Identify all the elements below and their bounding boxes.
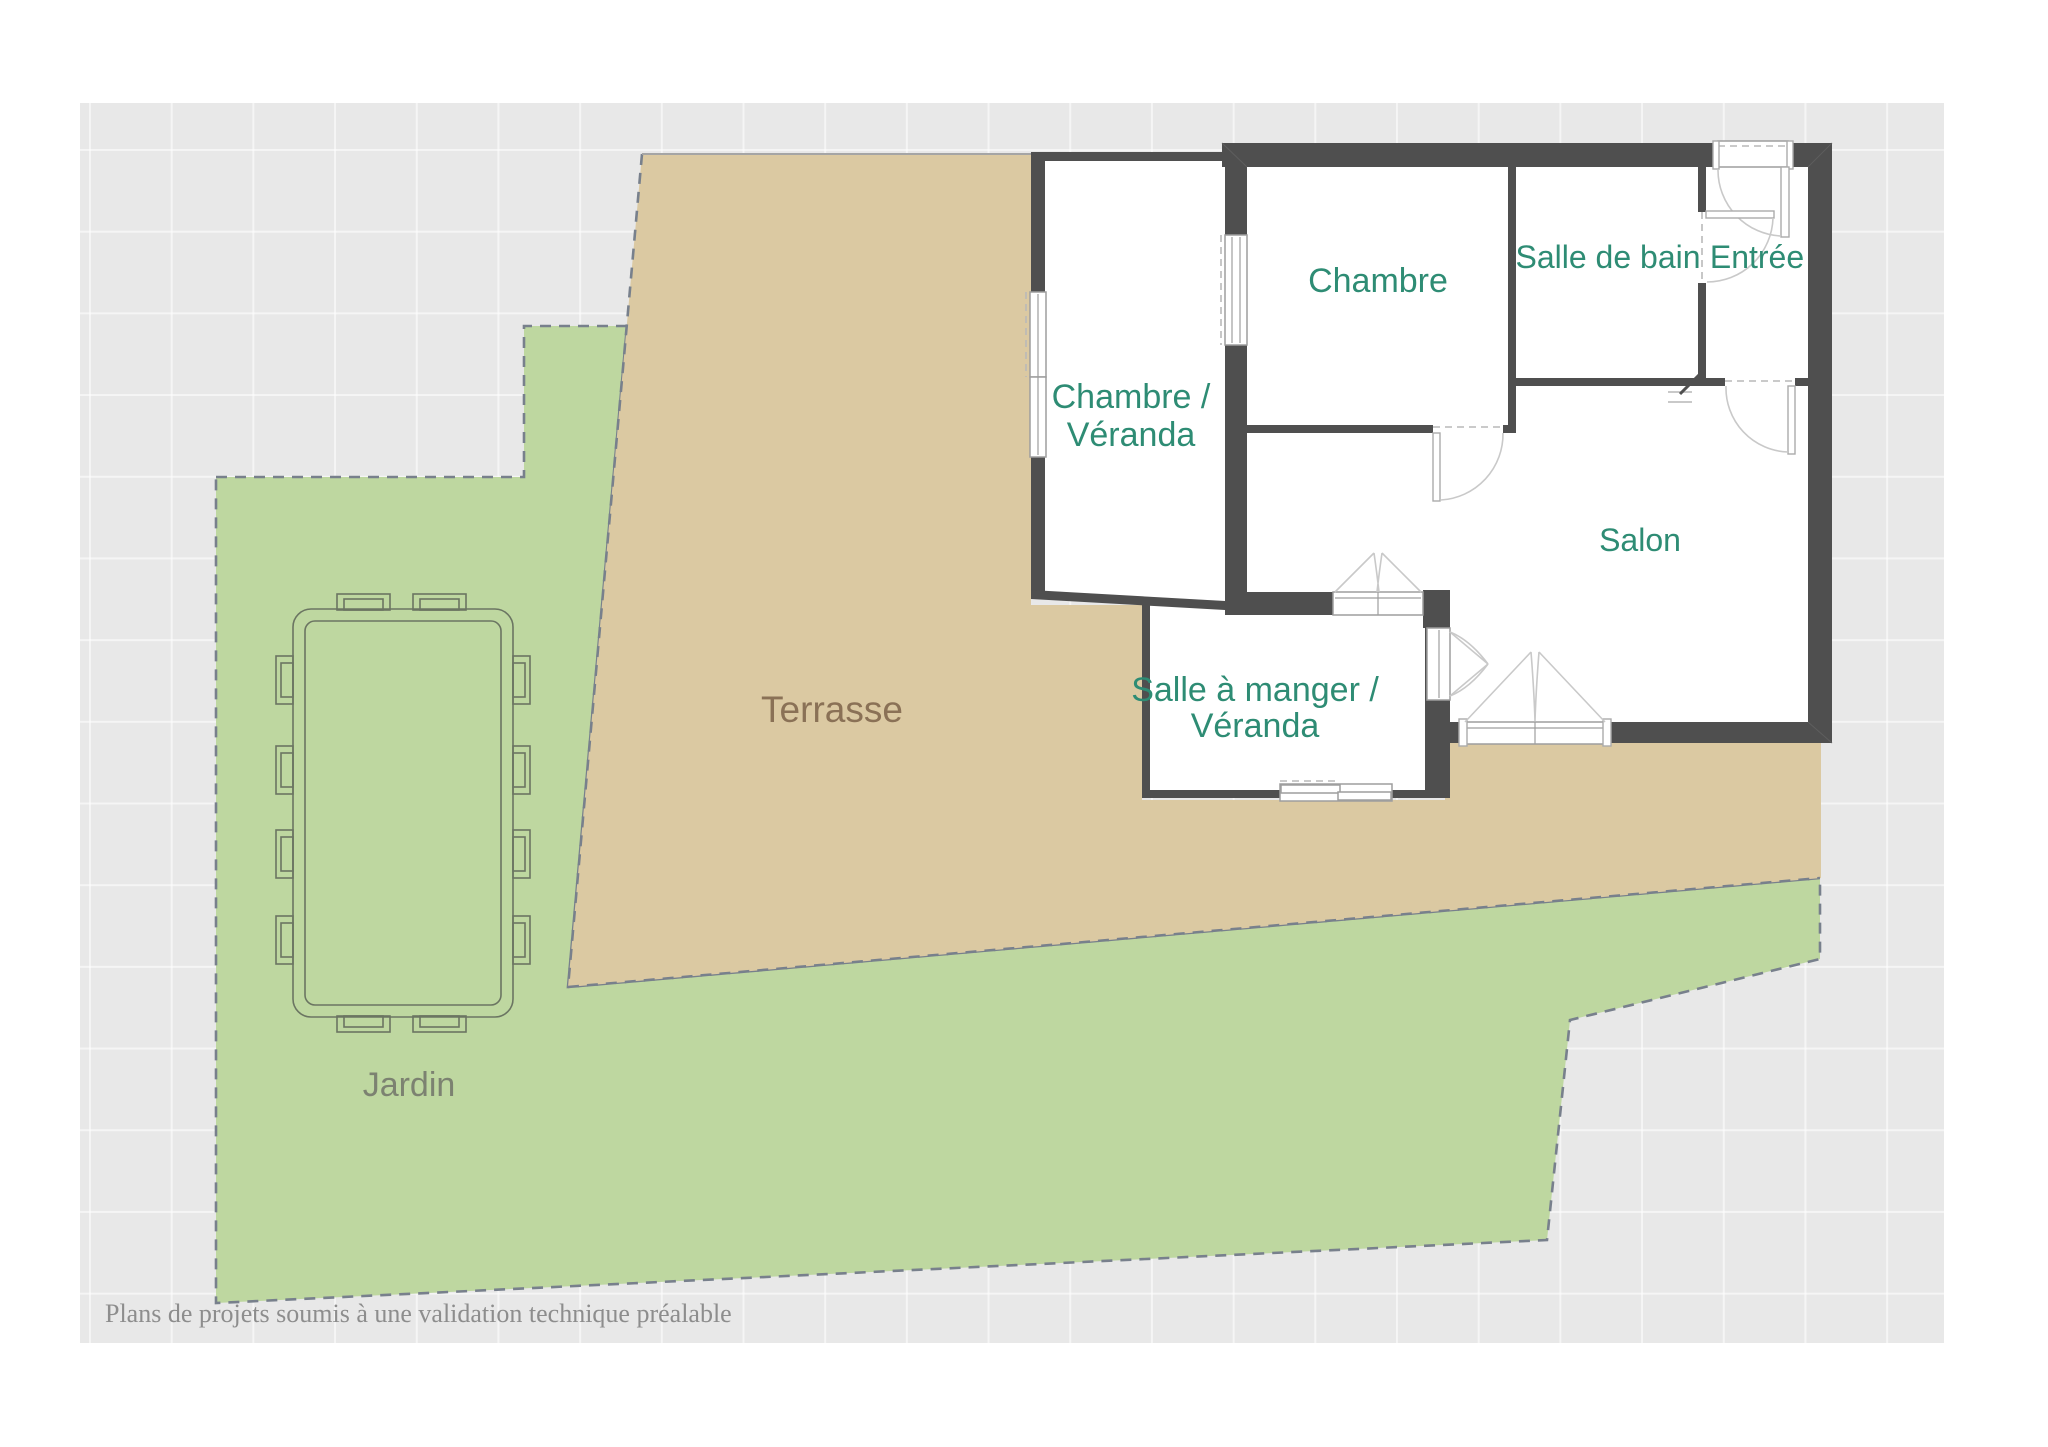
wall-top-left — [1222, 143, 1718, 167]
wall-veranda-left-upper — [1031, 152, 1045, 292]
wall-main-left — [1225, 143, 1247, 615]
label-chambre: Chambre — [1308, 262, 1448, 300]
footer-disclaimer: Plans de projets soumis à une validation… — [105, 1299, 732, 1328]
wall-chambre-sdb — [1508, 167, 1516, 433]
wall-salon-north-right — [1795, 378, 1808, 386]
label-entree: Entrée — [1710, 239, 1804, 275]
window-chambre-west — [1221, 235, 1247, 345]
wall-salon-south — [1607, 722, 1832, 743]
wall-chambre-south-left — [1247, 425, 1433, 433]
wall-chambre-south-right — [1503, 425, 1516, 433]
label-chambre-veranda-line1: Chambre / — [1052, 378, 1211, 416]
floor-plan-drawing: Chambre / Véranda Chambre Salle de bain … — [0, 0, 2048, 1447]
wall-veranda-top — [1031, 152, 1225, 161]
label-salle-a-manger-line1: Salle à manger / — [1131, 671, 1379, 709]
window-dining-sliding — [1280, 781, 1392, 801]
wall-veranda-left-lower — [1031, 457, 1045, 593]
label-chambre-veranda-line2: Véranda — [1067, 416, 1196, 454]
wall-sdb-entree-upper — [1698, 167, 1706, 212]
wall-right — [1808, 143, 1832, 743]
label-salle-de-bain: Salle de bain — [1515, 239, 1700, 275]
wall-sdb-entree-lower — [1698, 283, 1706, 378]
label-jardin: Jardin — [363, 1066, 456, 1104]
wall-hall-dining — [1247, 592, 1333, 615]
label-salle-a-manger-line2: Véranda — [1191, 707, 1320, 745]
label-terrasse: Terrasse — [761, 689, 903, 730]
label-salon: Salon — [1599, 522, 1681, 558]
wall-dining-south-left — [1142, 790, 1280, 798]
wall-dining-south-right — [1392, 790, 1438, 798]
